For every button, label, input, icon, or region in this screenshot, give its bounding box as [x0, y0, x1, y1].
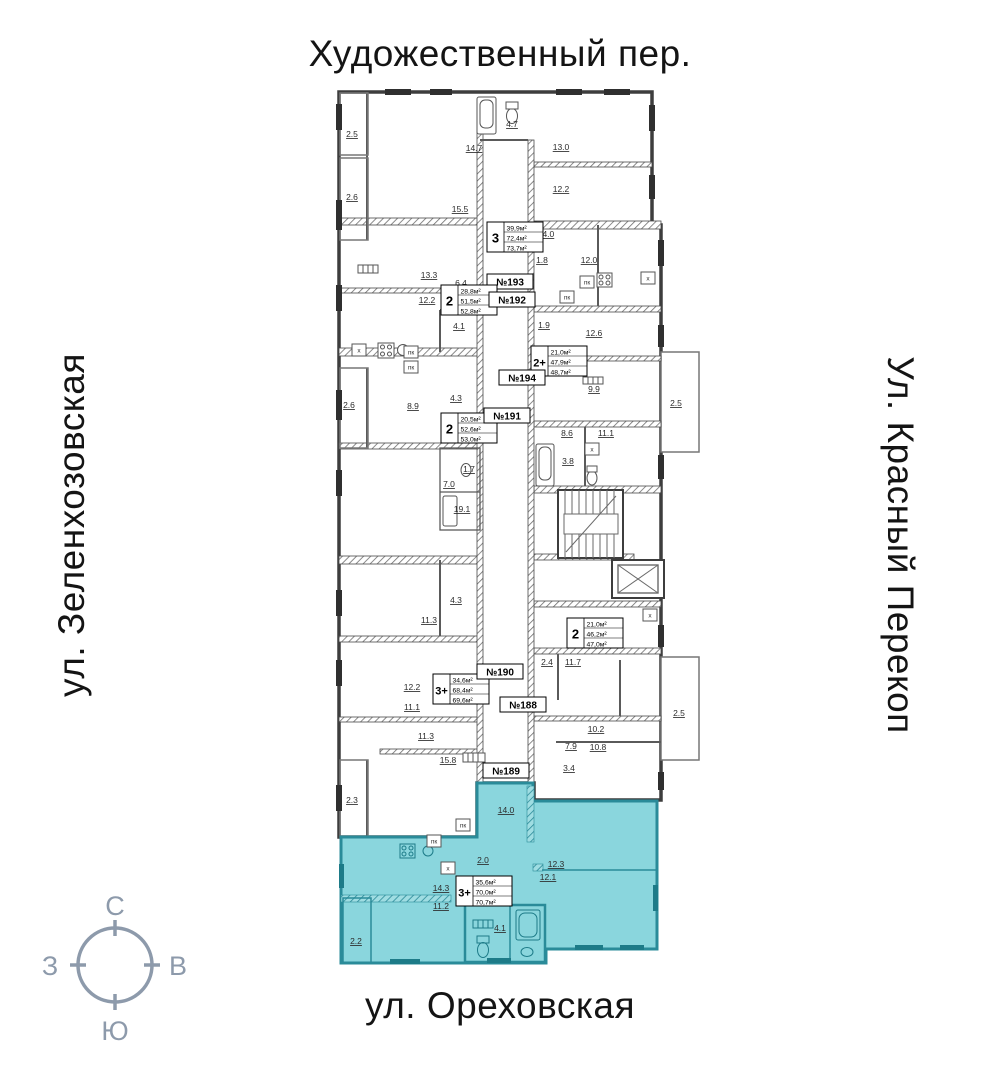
room-area-label: 12.3	[548, 859, 565, 869]
room-area-label: 1.9	[538, 320, 550, 330]
apartment-area-value: 51,5м²	[461, 298, 482, 305]
apartment-area-value: 52,8м²	[461, 308, 482, 315]
apartment-rooms-count: 2+	[533, 358, 546, 370]
svg-text:пк: пк	[431, 839, 438, 846]
apartment-rooms-count: 3+	[435, 686, 448, 698]
room-area-label: 11.1	[404, 702, 420, 712]
apartment-number-tag-190[interactable]: №190	[477, 664, 523, 679]
room-area-label: 11.2	[433, 901, 449, 911]
room-area-label: 11.3	[421, 615, 437, 625]
apartment-info-193[interactable]: 339,9м²72,4м²73,7м²	[487, 222, 543, 252]
fixture-symbol: х	[643, 609, 657, 621]
apartment-area-value: 21,0м²	[551, 349, 572, 356]
apartment-area-value: 73,7м²	[507, 245, 528, 252]
balconies-right	[661, 352, 699, 760]
apartment-area-value: 70,0м²	[476, 889, 497, 896]
fixture-symbol: х	[441, 862, 455, 874]
room-area-label: 7.0	[443, 479, 455, 489]
room-area-label: 4.3	[450, 595, 462, 605]
room-area-label: 4.7	[506, 119, 518, 129]
fixture-symbol: пк	[456, 819, 470, 831]
apartment-number-text: №192	[498, 295, 526, 306]
apartment-rooms-count: 3+	[458, 888, 471, 900]
room-area-label: 2.6	[346, 192, 358, 202]
apartment-area-value: 47,0м²	[587, 641, 608, 648]
fixture-symbol: пк	[580, 276, 594, 288]
fixture-symbol: х	[641, 272, 655, 284]
apartment-info-188[interactable]: 221,0м²46,2м²47,0м²	[567, 618, 623, 648]
apartment-number-text: №189	[492, 766, 520, 777]
apartment-rooms-count: 3	[492, 231, 499, 246]
room-area-label: 2.5	[670, 398, 682, 408]
apartment-area-value: 47,9м²	[551, 359, 572, 366]
fixture-symbol: пк	[427, 835, 441, 847]
apartment-area-value: 39,9м²	[507, 225, 528, 232]
apartment-number-tag-188[interactable]: №188	[500, 697, 546, 712]
apartment-area-value: 21,0м²	[587, 621, 608, 628]
apartment-rooms-count: 2	[572, 627, 579, 642]
room-area-label: 7.9	[565, 741, 577, 751]
apartment-number-text: №188	[509, 700, 537, 711]
compass-west-label: З	[42, 951, 58, 981]
room-area-label: 13.3	[421, 270, 438, 280]
room-area-label: 11.3	[418, 731, 434, 741]
room-area-label: 10.2	[588, 724, 605, 734]
apartment-number-text: №194	[508, 373, 536, 384]
room-area-label: 14.0	[498, 805, 515, 815]
svg-text:пк: пк	[408, 350, 415, 357]
room-area-label: 8.9	[407, 401, 419, 411]
compass-south-label: Ю	[101, 1016, 128, 1046]
elevator-shaft	[612, 560, 664, 598]
compass-north-label: С	[105, 891, 125, 921]
room-area-label: 4.1	[453, 321, 465, 331]
apartment-area-value: 68,4м²	[453, 687, 474, 694]
room-area-label: 12.2	[553, 184, 570, 194]
floorplan-page: Художественный пер. ул. Зеленхозовская У…	[0, 0, 1000, 1067]
apartment-number-text: №193	[496, 277, 524, 288]
apartment-area-value: 53,0м²	[461, 436, 482, 443]
room-area-label: 8.6	[561, 428, 573, 438]
apartment-area-value: 35,6м²	[476, 879, 497, 886]
room-area-label: 11.7	[565, 657, 581, 667]
room-area-label: 11.1	[598, 428, 614, 438]
fixture-symbol: пк	[404, 346, 418, 358]
apartment-number-text: №191	[493, 411, 521, 422]
apartment-area-value: 28,8м²	[461, 288, 482, 295]
apartment-number-tag-194[interactable]: №194	[499, 370, 545, 385]
room-area-label: 15.5	[452, 204, 469, 214]
fixture-symbol: пк	[560, 291, 574, 303]
room-area-label: 14.3	[433, 883, 450, 893]
room-area-label: 3.8	[562, 456, 574, 466]
room-area-label: 13.0	[553, 142, 570, 152]
room-area-label: 19.1	[454, 504, 471, 514]
stairs	[558, 490, 623, 558]
room-area-label: 12.0	[581, 255, 598, 265]
svg-text:пк: пк	[584, 280, 591, 287]
room-area-label: 1.8	[536, 255, 548, 265]
fixture-symbol: пк	[404, 361, 418, 373]
room-area-label: 2.0	[477, 855, 489, 865]
room-area-label: 2.5	[346, 129, 358, 139]
room-area-label: 10.8	[590, 742, 607, 752]
svg-text:пк: пк	[564, 295, 571, 302]
room-area-label: 2.3	[346, 795, 358, 805]
room-area-label: 3.4	[563, 763, 575, 773]
apartment-area-value: 52,6м²	[461, 426, 482, 433]
room-area-label: 12.6	[586, 328, 603, 338]
apartment-rooms-count: 2	[446, 422, 453, 437]
room-area-label: 1.7	[463, 464, 475, 474]
room-area-label: 2.2	[350, 936, 362, 946]
room-area-label: 15.8	[440, 755, 457, 765]
svg-text:пк: пк	[408, 365, 415, 372]
apartment-number-text: №190	[486, 667, 514, 678]
apartment-rooms-count: 2	[446, 294, 453, 309]
apartment-area-value: 70,7м²	[476, 899, 497, 906]
room-area-label: 2.5	[673, 708, 685, 718]
svg-text:пк: пк	[460, 823, 467, 830]
apartment-number-tag-192[interactable]: №192	[489, 292, 535, 307]
compass-east-label: В	[169, 951, 187, 981]
building-outline	[339, 92, 661, 837]
fixture-symbol: х	[352, 344, 366, 356]
compass: С Ю З В	[42, 891, 187, 1046]
apartment-area-value: 46,2м²	[587, 631, 608, 638]
apartment-area-value: 34,6м²	[453, 677, 474, 684]
room-area-label: 4.1	[494, 923, 506, 933]
apartment-area-value: 72,4м²	[507, 235, 528, 242]
apartment-area-value: 69,6м²	[453, 697, 474, 704]
room-area-label: 14.7	[466, 143, 483, 153]
compass-circle	[78, 928, 152, 1002]
apartment-info-189[interactable]: 3+35,6м²70,0м²70,7м²	[456, 876, 512, 906]
apartment-number-tag-189[interactable]: №189	[483, 763, 529, 778]
apartment-area-value: 48,7м²	[551, 369, 572, 376]
room-area-label: 12.1	[540, 872, 557, 882]
fixture-symbol: х	[585, 443, 599, 455]
floor-plan-svg: 2.52.615.514.74.713.012.213.36.412.214.0…	[0, 0, 1000, 1067]
apartment-area-value: 20,5м²	[461, 416, 482, 423]
room-area-label: 12.2	[419, 295, 436, 305]
room-area-label: 4.3	[450, 393, 462, 403]
room-area-label: 9.9	[588, 384, 600, 394]
room-area-label: 2.6	[343, 400, 355, 410]
room-area-label: 12.2	[404, 682, 421, 692]
apartment-number-tag-191[interactable]: №191	[484, 408, 530, 423]
room-area-label: 2.4	[541, 657, 553, 667]
